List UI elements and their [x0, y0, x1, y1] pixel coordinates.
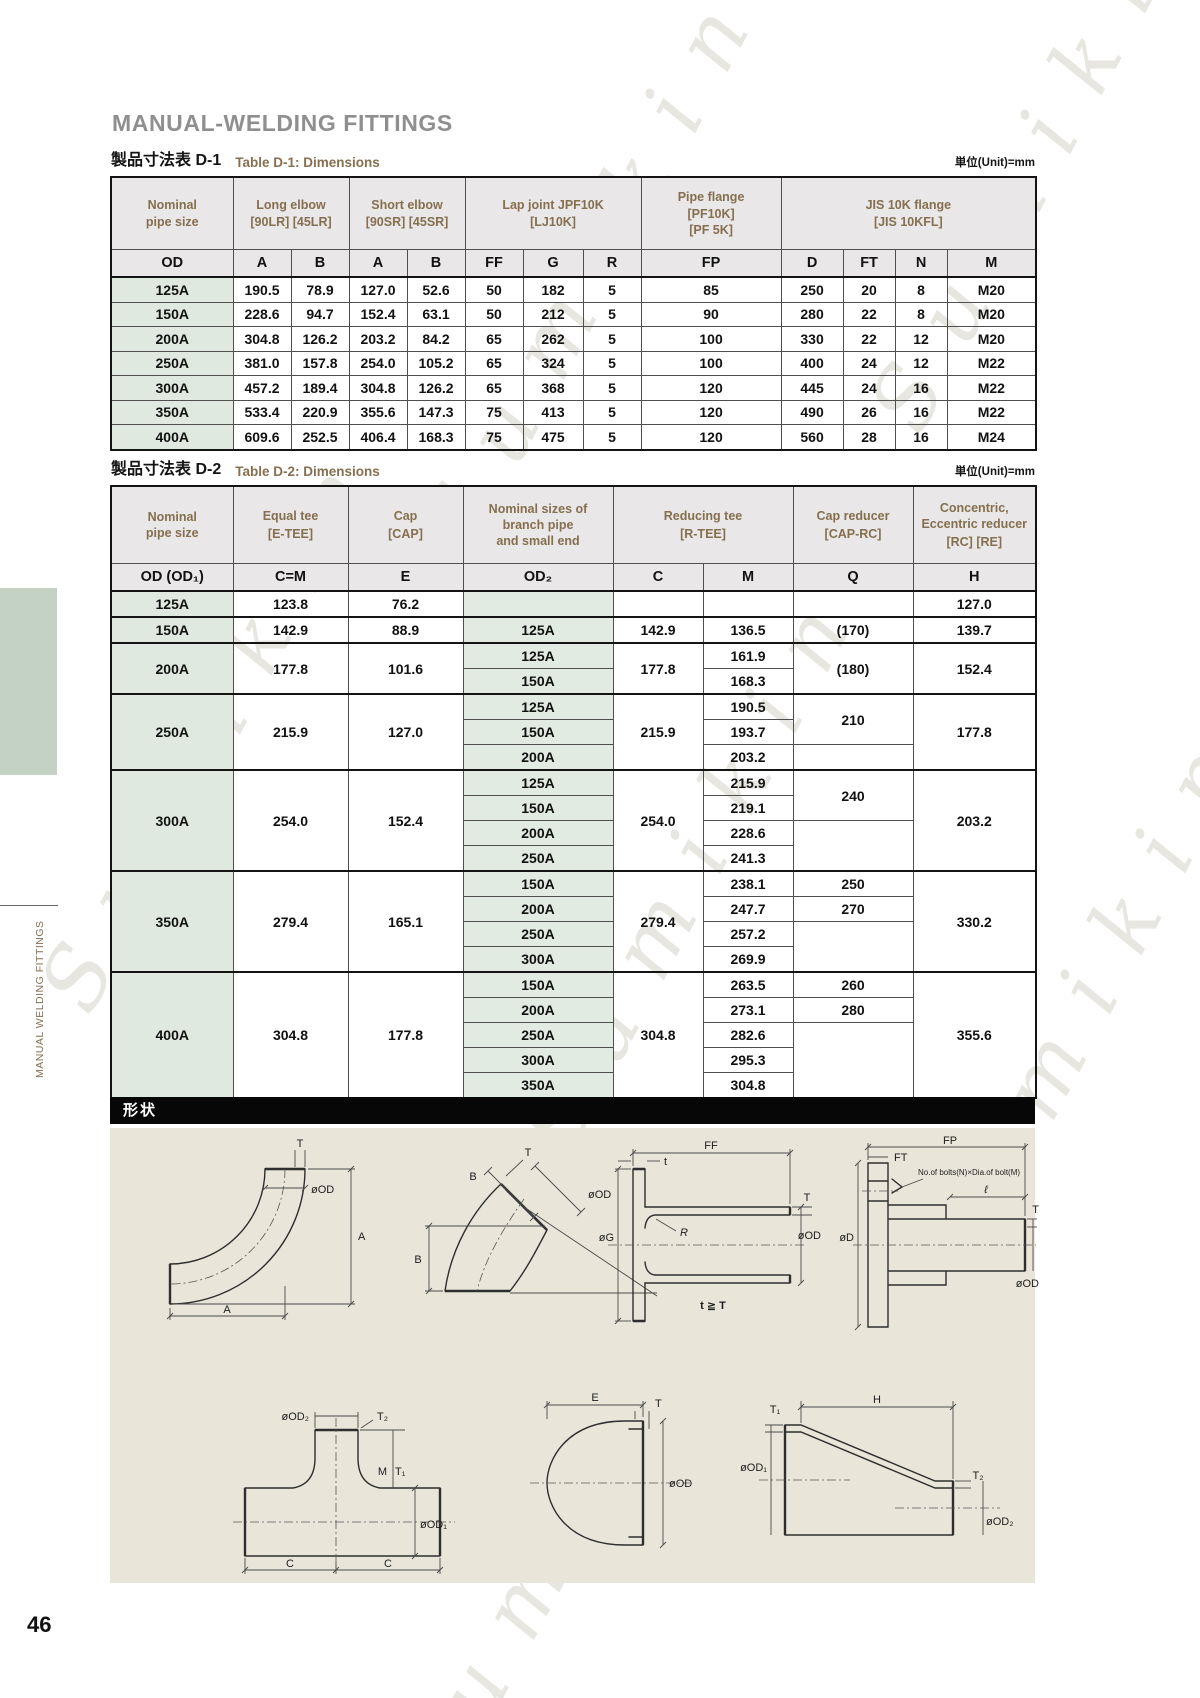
branch-size-cell: 150A: [463, 669, 613, 695]
col-header: D: [781, 250, 843, 278]
col-header: A: [233, 250, 291, 278]
dimension-cell: 24: [843, 351, 895, 376]
dim-label: T₁: [770, 1404, 781, 1416]
d1-body: 125A190.578.9127.052.650182585250208M201…: [111, 277, 1036, 450]
col-header: H: [913, 564, 1036, 592]
dimension-cell: 75: [465, 425, 523, 450]
table-d1-caption-jp: 製品寸法表 D-1: [111, 146, 221, 170]
branch-size-cell: 200A: [463, 998, 613, 1023]
catalog-page: Sumikin Sumikin Sumikin Sumikin Sumikin …: [0, 0, 1200, 1698]
dimension-cell: 282.6: [703, 1023, 793, 1048]
dimension-cell: 105.2: [407, 351, 465, 376]
branch-size-cell: 150A: [463, 720, 613, 745]
col-header: OD: [111, 250, 233, 278]
bolt-note: No.of bolts(N)×Dia.of bolt(M): [918, 1168, 1020, 1177]
col-header: FP: [641, 250, 781, 278]
dimension-cell: 50: [465, 277, 523, 302]
dimension-cell: 215.9: [703, 770, 793, 796]
dimension-cell: 16: [895, 425, 947, 450]
dimension-cell: 228.6: [703, 821, 793, 846]
dimension-cell: 560: [781, 425, 843, 450]
group-title: Nominal pipe size: [112, 509, 233, 542]
dimension-cell: 189.4: [291, 376, 349, 401]
dimension-cell: 247.7: [703, 897, 793, 922]
dimension-cell: 355.6: [913, 972, 1036, 1098]
dimensions-table-d1: Nominal pipe size Long elbow[90LR] [45LR…: [110, 176, 1037, 451]
dimension-cell: 203.2: [913, 770, 1036, 871]
dimension-cell: 262: [523, 327, 583, 352]
dim-label: T₂: [973, 1470, 984, 1482]
branch-size-cell: 200A: [463, 745, 613, 771]
dimension-cell: 5: [583, 400, 641, 425]
dimension-cell: 123.8: [233, 591, 348, 617]
group-header: Short elbow[90SR] [45SR]: [349, 177, 465, 250]
group-header: Cap[CAP]: [348, 486, 463, 564]
shape-diagrams-panel: T øOD A A B: [110, 1128, 1035, 1583]
dimension-cell: 65: [465, 376, 523, 401]
dimension-cell: 152.4: [348, 770, 463, 871]
nominal-size-cell: 125A: [111, 591, 233, 617]
group-header: Nominal sizes of branch pipe and small e…: [463, 486, 613, 564]
tee-drawing: øOD₂ T₂ M T₁ øOD₁ C C: [215, 1378, 470, 1578]
nominal-size-cell: 200A: [111, 643, 233, 694]
dimension-cell: 457.2: [233, 376, 291, 401]
col-header: N: [895, 250, 947, 278]
note-label: t ≧ T: [700, 1300, 726, 1312]
table-row: 350A 279.4 165.1 150A 279.4 238.1 250 33…: [111, 871, 1036, 897]
dimension-cell: M20: [947, 302, 1036, 327]
margin-green-block: [0, 588, 57, 775]
dimension-cell: 252.5: [291, 425, 349, 450]
nominal-size-cell: 400A: [111, 972, 233, 1098]
group-title: Cap reducer: [794, 508, 913, 524]
dimension-cell: 88.9: [348, 617, 463, 643]
dimension-cell: 254.0: [613, 770, 703, 871]
dimension-cell: M20: [947, 327, 1036, 352]
figure-tee: øOD₂ T₂ M T₁ øOD₁ C C: [215, 1378, 470, 1578]
dimension-cell: 445: [781, 376, 843, 401]
group-sub: [90SR] [45SR]: [350, 214, 465, 230]
empty-cell: [793, 1023, 913, 1099]
dim-label: T₁: [395, 1466, 406, 1478]
dimension-cell: 263.5: [703, 972, 793, 998]
group-sub: [R-TEE]: [614, 526, 793, 542]
dimension-cell: 475: [523, 425, 583, 450]
group-title: Short elbow: [350, 197, 465, 213]
dimension-cell: 270: [793, 897, 913, 922]
table-row: 400A 304.8 177.8 150A 304.8 263.5 260 35…: [111, 972, 1036, 998]
dimension-cell: 5: [583, 277, 641, 302]
dimension-cell: 406.4: [349, 425, 407, 450]
group-header: Pipe flange[PF10K] [PF 5K]: [641, 177, 781, 250]
dim-label: øOD: [1016, 1278, 1039, 1290]
group-header: Cap reducer[CAP-RC]: [793, 486, 913, 564]
branch-size-cell: 125A: [463, 643, 613, 669]
branch-size-cell: 250A: [463, 846, 613, 872]
dim-label: T₂: [377, 1411, 388, 1423]
dimension-cell: 381.0: [233, 351, 291, 376]
dimension-cell: 168.3: [407, 425, 465, 450]
dim-label: A: [358, 1231, 366, 1243]
dimension-cell: 142.9: [613, 617, 703, 643]
dim-label: øOD₁: [420, 1519, 447, 1531]
cap-drawing: E T øOD: [505, 1383, 710, 1578]
branch-size-cell: 200A: [463, 897, 613, 922]
dim-label: A: [223, 1304, 231, 1316]
dimension-cell: M20: [947, 277, 1036, 302]
nominal-size-cell: 250A: [111, 694, 233, 770]
group-header: Nominal pipe size: [111, 486, 233, 564]
nominal-size-cell: 300A: [111, 376, 233, 401]
dimension-cell: 295.3: [703, 1048, 793, 1073]
reducer-drawing: T₁ H T₂ øOD₁ øOD₂: [735, 1383, 1025, 1573]
dimension-cell: 16: [895, 400, 947, 425]
dim-label: B: [414, 1254, 421, 1266]
dimension-cell: 304.8: [233, 327, 291, 352]
group-sub: [CAP]: [349, 526, 463, 542]
branch-size-cell: 250A: [463, 922, 613, 947]
table-row: 300A 254.0 152.4 125A 254.0 215.9 240 20…: [111, 770, 1036, 796]
dimension-cell: 127.0: [349, 277, 407, 302]
dimension-cell: 120: [641, 425, 781, 450]
group-sub: [E-TEE]: [234, 526, 348, 542]
dimension-cell: 22: [843, 327, 895, 352]
nominal-size-cell: 300A: [111, 770, 233, 871]
dimension-cell: 241.3: [703, 846, 793, 872]
dimension-cell: 8: [895, 277, 947, 302]
empty-cell: [613, 591, 703, 617]
dimension-cell: 228.6: [233, 302, 291, 327]
dimension-cell: 177.8: [613, 643, 703, 694]
col-header: B: [291, 250, 349, 278]
branch-size-cell: 150A: [463, 871, 613, 897]
dimension-cell: M22: [947, 400, 1036, 425]
dimension-cell: 260: [793, 972, 913, 998]
dimension-cell: 190.5: [233, 277, 291, 302]
dimension-cell: 52.6: [407, 277, 465, 302]
dimension-cell: 165.1: [348, 871, 463, 972]
table-row: 150A228.694.7152.463.150212590280228M20: [111, 302, 1036, 327]
group-sub: [PF10K] [PF 5K]: [642, 206, 781, 239]
nominal-size-cell: 350A: [111, 871, 233, 972]
dimension-cell: 210: [793, 694, 913, 745]
dimension-cell: 127.0: [348, 694, 463, 770]
dim-label: M: [378, 1466, 387, 1478]
dim-label: T: [655, 1398, 662, 1410]
dim-label: E: [591, 1392, 598, 1404]
sidebar-rule: [0, 905, 58, 906]
branch-size-cell: 125A: [463, 617, 613, 643]
dimension-cell: 152.4: [349, 302, 407, 327]
table-row: 125A 123.8 76.2 127.0: [111, 591, 1036, 617]
group-header: Lap joint JPF10K[LJ10K]: [465, 177, 641, 250]
group-title: JIS 10K flange: [782, 197, 1036, 213]
dimension-cell: 355.6: [349, 400, 407, 425]
dimension-cell: 142.9: [233, 617, 348, 643]
branch-size-cell: 125A: [463, 694, 613, 720]
dimension-cell: 78.9: [291, 277, 349, 302]
dimension-cell: 100: [641, 327, 781, 352]
figure-reducer: T₁ H T₂ øOD₁ øOD₂: [735, 1383, 1025, 1573]
group-title: Nominal pipe size: [112, 197, 233, 230]
col-header: OD (OD₁): [111, 564, 233, 592]
dim-label: C: [384, 1558, 392, 1570]
group-title: Cap: [349, 508, 463, 524]
table-row: 250A 215.9 127.0 125A 215.9 190.5 210 17…: [111, 694, 1036, 720]
d2-group-header-row: Nominal pipe size Equal tee[E-TEE] Cap[C…: [111, 486, 1036, 564]
dimension-cell: 240: [793, 770, 913, 821]
dimension-cell: M22: [947, 351, 1036, 376]
dimension-cell: 177.8: [348, 972, 463, 1098]
empty-cell: [793, 591, 913, 617]
group-title: Concentric, Eccentric reducer: [914, 500, 1036, 533]
shape-section-header: 形状: [110, 1097, 1035, 1124]
nominal-size-cell: 400A: [111, 425, 233, 450]
dimension-cell: 182: [523, 277, 583, 302]
dimension-cell: 177.8: [233, 643, 348, 694]
elbow-90-drawing: T øOD A A: [125, 1136, 375, 1326]
col-header: OD₂: [463, 564, 613, 592]
figure-flange: FP FT No.of bolts(N)×Dia.of bolt(M) ℓ T …: [828, 1133, 1040, 1348]
dimension-cell: 126.2: [407, 376, 465, 401]
dimension-cell: 193.7: [703, 720, 793, 745]
table-row: 150A 142.9 88.9 125A 142.9 136.5 (170) 1…: [111, 617, 1036, 643]
dimension-cell: 330: [781, 327, 843, 352]
group-title: Equal tee: [234, 508, 348, 524]
table-row: 125A190.578.9127.052.650182585250208M20: [111, 277, 1036, 302]
page-title: MANUAL-WELDING FITTINGS: [112, 110, 453, 137]
col-header: E: [348, 564, 463, 592]
dim-label: FP: [943, 1135, 957, 1147]
group-header: Concentric, Eccentric reducer[RC] [RE]: [913, 486, 1036, 564]
dimension-cell: 16: [895, 376, 947, 401]
dimension-cell: 8: [895, 302, 947, 327]
group-sub: [90LR] [45LR]: [234, 214, 349, 230]
dimension-cell: 101.6: [348, 643, 463, 694]
table-row: 400A609.6252.5406.4168.37547551205602816…: [111, 425, 1036, 450]
dimension-cell: 280: [793, 998, 913, 1023]
dimensions-table-d2: Nominal pipe size Equal tee[E-TEE] Cap[C…: [110, 485, 1037, 1099]
dimension-cell: 94.7: [291, 302, 349, 327]
group-title: Lap joint JPF10K: [466, 197, 641, 213]
table-d2-caption-jp: 製品寸法表 D-2: [111, 455, 221, 479]
col-header: FF: [465, 250, 523, 278]
dimension-cell: 120: [641, 400, 781, 425]
dimension-cell: 257.2: [703, 922, 793, 947]
dimension-cell: 65: [465, 327, 523, 352]
dim-label: øOD: [311, 1184, 334, 1196]
nominal-size-cell: 250A: [111, 351, 233, 376]
dimension-cell: 26: [843, 400, 895, 425]
col-header: C: [613, 564, 703, 592]
dimension-cell: 254.0: [233, 770, 348, 871]
nominal-size-cell: 200A: [111, 327, 233, 352]
table-d1-caption-en: Table D-1: Dimensions: [235, 155, 380, 170]
empty-cell: [703, 591, 793, 617]
dimension-cell: 190.5: [703, 694, 793, 720]
sidebar-section-label: MANUAL WELDING FITTINGS: [34, 920, 46, 1078]
dim-label: øOD₂: [986, 1516, 1014, 1528]
dimension-cell: 490: [781, 400, 843, 425]
group-title: Nominal sizes of branch pipe and small e…: [464, 501, 613, 550]
dim-label: øOD: [669, 1478, 692, 1490]
table-row: 200A304.8126.2203.284.26526251003302212M…: [111, 327, 1036, 352]
col-header: Q: [793, 564, 913, 592]
dimension-cell: 139.7: [913, 617, 1036, 643]
dimension-cell: 5: [583, 351, 641, 376]
dimension-cell: 90: [641, 302, 781, 327]
dimension-cell: 215.9: [233, 694, 348, 770]
dimension-cell: 533.4: [233, 400, 291, 425]
dimension-cell: 238.1: [703, 871, 793, 897]
table-d1-caption: 製品寸法表 D-1 Table D-1: Dimensions 単位(Unit)…: [111, 146, 1035, 170]
dimension-cell: 5: [583, 376, 641, 401]
table-d2-caption-en: Table D-2: Dimensions: [235, 464, 380, 479]
dimension-cell: 203.2: [349, 327, 407, 352]
branch-size-cell: 200A: [463, 821, 613, 846]
dimension-cell: 220.9: [291, 400, 349, 425]
dimension-cell: M24: [947, 425, 1036, 450]
figure-90-elbow: T øOD A A: [125, 1136, 375, 1326]
dimension-cell: 28: [843, 425, 895, 450]
empty-cell: [793, 821, 913, 872]
page-number: 46: [27, 1612, 51, 1638]
dim-label: T: [525, 1147, 532, 1159]
dim-label: øOD: [798, 1230, 821, 1242]
dimension-cell: 413: [523, 400, 583, 425]
group-sub: [RC] [RE]: [914, 534, 1036, 550]
group-header: Nominal pipe size: [111, 177, 233, 250]
dimension-cell: M22: [947, 376, 1036, 401]
dimension-cell: 161.9: [703, 643, 793, 669]
dimension-cell: 152.4: [913, 643, 1036, 694]
dimension-cell: 304.8: [703, 1073, 793, 1099]
col-header: A: [349, 250, 407, 278]
dimension-cell: 280: [781, 302, 843, 327]
table-row: 350A533.4220.9355.6147.37541351204902616…: [111, 400, 1036, 425]
dimension-cell: 304.8: [233, 972, 348, 1098]
group-sub: [CAP-RC]: [794, 526, 913, 542]
dim-label: øG: [599, 1232, 614, 1244]
dimension-cell: 609.6: [233, 425, 291, 450]
dimension-cell: 136.5: [703, 617, 793, 643]
dimension-cell: 85: [641, 277, 781, 302]
dim-label: T: [804, 1192, 811, 1204]
dimension-cell: 50: [465, 302, 523, 327]
dimension-cell: 250: [781, 277, 843, 302]
dimension-cell: 157.8: [291, 351, 349, 376]
group-header: Long elbow[90LR] [45LR]: [233, 177, 349, 250]
dimension-cell: 12: [895, 327, 947, 352]
dim-label: ℓ: [983, 1184, 988, 1196]
branch-size-cell: 300A: [463, 947, 613, 973]
dimension-cell: 5: [583, 302, 641, 327]
col-header: FT: [843, 250, 895, 278]
table-row: 250A381.0157.8254.0105.26532451004002412…: [111, 351, 1036, 376]
dim-label: t: [664, 1156, 667, 1168]
dimension-cell: 273.1: [703, 998, 793, 1023]
unit-label: 単位(Unit)=mm: [955, 154, 1035, 170]
branch-size-cell: 125A: [463, 770, 613, 796]
d2-column-header-row: OD (OD₁) C=M E OD₂ C M Q H: [111, 564, 1036, 592]
dim-label: øOD₂: [282, 1411, 310, 1423]
dimension-cell: 12: [895, 351, 947, 376]
dimension-cell: 212: [523, 302, 583, 327]
dimension-cell: 24: [843, 376, 895, 401]
figure-cap: E T øOD: [505, 1383, 710, 1578]
dimension-cell: 304.8: [613, 972, 703, 1098]
figure-lap-joint: øG øOD FF t R T t ≧ T: [588, 1133, 823, 1348]
dimension-cell: 22: [843, 302, 895, 327]
dimension-cell: 304.8: [349, 376, 407, 401]
dimension-cell: 65: [465, 351, 523, 376]
dimension-cell: 5: [583, 327, 641, 352]
dimension-cell: 147.3: [407, 400, 465, 425]
branch-size-cell: 150A: [463, 972, 613, 998]
col-header: M: [947, 250, 1036, 278]
branch-size-cell: 150A: [463, 796, 613, 821]
dim-label: R: [680, 1227, 688, 1239]
dimension-cell: 126.2: [291, 327, 349, 352]
col-header: M: [703, 564, 793, 592]
col-header: R: [583, 250, 641, 278]
dimension-cell: 324: [523, 351, 583, 376]
table-row: 200A 177.8 101.6 125A 177.8 161.9 (180) …: [111, 643, 1036, 669]
empty-cell: [463, 591, 613, 617]
d2-body: 125A 123.8 76.2 127.0 150A 142.9 88.9 12…: [111, 591, 1036, 1098]
dimension-cell: 269.9: [703, 947, 793, 973]
branch-size-cell: 300A: [463, 1048, 613, 1073]
dimension-cell: 63.1: [407, 302, 465, 327]
flange-drawing: FP FT No.of bolts(N)×Dia.of bolt(M) ℓ T …: [828, 1133, 1040, 1348]
dim-label: FT: [894, 1152, 908, 1164]
empty-cell: [793, 922, 913, 973]
group-header: Reducing tee[R-TEE]: [613, 486, 793, 564]
group-title: Reducing tee: [614, 508, 793, 524]
dimension-cell: 368: [523, 376, 583, 401]
dimension-cell: 215.9: [613, 694, 703, 770]
dimension-cell: 254.0: [349, 351, 407, 376]
dimension-cell: 120: [641, 376, 781, 401]
dim-label: FF: [704, 1140, 718, 1152]
nominal-size-cell: 150A: [111, 302, 233, 327]
dimension-cell: 76.2: [348, 591, 463, 617]
dimension-cell: 279.4: [613, 871, 703, 972]
dimension-cell: (170): [793, 617, 913, 643]
empty-cell: [793, 745, 913, 771]
dimension-cell: 20: [843, 277, 895, 302]
dimension-cell: 279.4: [233, 871, 348, 972]
dim-label: C: [286, 1558, 294, 1570]
d1-group-header-row: Nominal pipe size Long elbow[90LR] [45LR…: [111, 177, 1036, 250]
dimension-cell: 127.0: [913, 591, 1036, 617]
dimension-cell: 177.8: [913, 694, 1036, 770]
unit-label: 単位(Unit)=mm: [955, 463, 1035, 479]
dimension-cell: 100: [641, 351, 781, 376]
group-title: Pipe flange: [642, 189, 781, 205]
group-title: Long elbow: [234, 197, 349, 213]
dimension-cell: 203.2: [703, 745, 793, 771]
dimension-cell: 330.2: [913, 871, 1036, 972]
nominal-size-cell: 150A: [111, 617, 233, 643]
dimension-cell: 5: [583, 425, 641, 450]
nominal-size-cell: 125A: [111, 277, 233, 302]
dim-label: H: [873, 1394, 881, 1406]
dimension-cell: 75: [465, 400, 523, 425]
table-row: 300A457.2189.4304.8126.26536851204452416…: [111, 376, 1036, 401]
lap-joint-drawing: øG øOD FF t R T t ≧ T: [588, 1133, 823, 1348]
dimension-cell: 219.1: [703, 796, 793, 821]
